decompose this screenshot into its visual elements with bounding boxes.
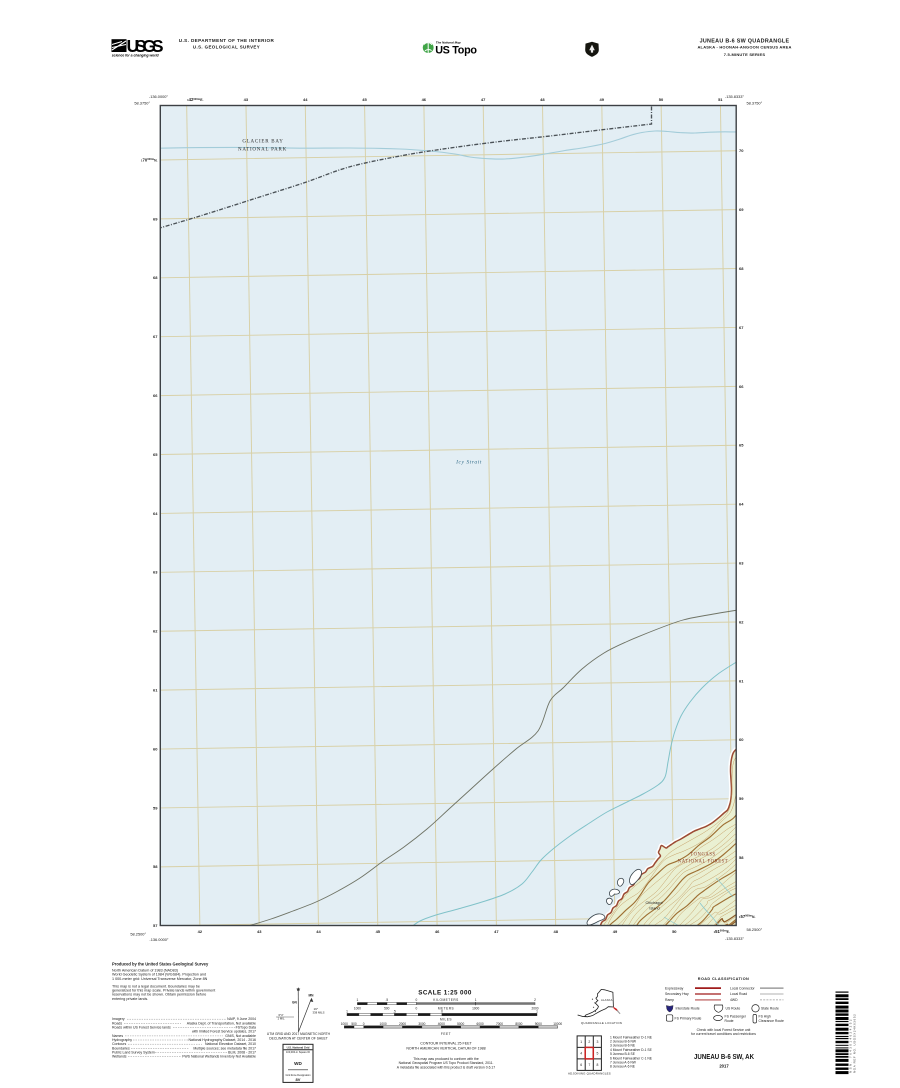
svg-text:500: 500 [351,1022,357,1026]
svg-text:65: 65 [153,452,158,457]
svg-text:49: 49 [613,929,618,934]
svg-text:58.2500°: 58.2500° [130,931,146,936]
svg-text:10000: 10000 [553,1022,562,1026]
svg-text:1: 1 [346,1009,348,1013]
svg-text:1: 1 [536,1009,538,1013]
svg-text:8: 8 [596,1063,598,1067]
svg-text:9000: 9000 [535,1022,542,1026]
svg-text:68: 68 [153,275,158,280]
svg-text:3: 3 [596,1040,598,1044]
svg-text:JUNEAU B-6 SW, AK: JUNEAU B-6 SW, AK [694,1054,754,1061]
svg-text:ALASKA - HOONAH-ANGOON CENSUS: ALASKA - HOONAH-ANGOON CENSUS AREA [697,45,791,50]
svg-text:State Route: State Route [761,1006,779,1010]
svg-text:Ramp: Ramp [665,998,674,1002]
svg-text:Local Connector: Local Connector [730,986,756,990]
svg-text:46: 46 [422,97,427,102]
svg-text:61: 61 [739,678,744,683]
svg-text:60: 60 [739,737,744,742]
svg-text:0: 0 [441,1009,443,1013]
svg-text:7.5-MINUTE SERIES: 7.5-MINUTE SERIES [724,52,766,57]
svg-text:59: 59 [739,796,744,801]
svg-text:8V: 8V [296,1077,301,1082]
svg-text:NGA REF NO. USGSX24K63652: NGA REF NO. USGSX24K63652 [853,1014,857,1073]
svg-text:47: 47 [494,929,499,934]
svg-text:338 MILS: 338 MILS [313,1011,325,1015]
svg-text:69: 69 [739,207,744,212]
svg-text:Interstate Route: Interstate Route [676,1006,700,1010]
svg-text:U.S. National Grid: U.S. National Grid [287,1045,310,1049]
svg-text:-135.8333°: -135.8333° [725,94,745,99]
svg-text:58.3750°: 58.3750° [747,100,763,105]
svg-text:3000: 3000 [418,1022,425,1026]
svg-text:57: 57 [153,923,158,928]
svg-text:45: 45 [362,97,367,102]
svg-text:Island: Island [649,907,659,911]
svg-text:68: 68 [739,266,744,271]
svg-text:58.3750°: 58.3750° [134,100,150,105]
svg-text:1: 1 [475,998,477,1002]
svg-text:2017: 2017 [719,1063,729,1068]
svg-text:NATIONAL FOREST: NATIONAL FOREST [678,860,728,865]
svg-text:4000: 4000 [438,1022,445,1026]
svg-text:.5: .5 [385,998,388,1002]
svg-text:51: 51 [718,97,723,102]
svg-text:GN: GN [292,1000,297,1004]
svg-text:58: 58 [739,855,744,860]
svg-text:500: 500 [384,1007,390,1011]
svg-text:Clearance Route: Clearance Route [759,1019,785,1023]
svg-text:MN: MN [309,994,315,998]
svg-text:58.2500°: 58.2500° [747,927,763,932]
svg-text:1000: 1000 [354,1007,361,1011]
svg-text:WD: WD [294,1061,302,1066]
svg-text:2000: 2000 [399,1022,406,1026]
svg-text:1 000-meter grid: Universal Tr: 1 000-meter grid: Universal Transverse M… [112,977,208,981]
svg-text:Route: Route [725,1019,734,1023]
svg-text:5000: 5000 [457,1022,464,1026]
svg-text:U.S. DEPARTMENT OF THE INTERIO: U.S. DEPARTMENT OF THE INTERIOR [179,38,275,43]
svg-text:NATIONAL PARK: NATIONAL PARK [238,148,287,153]
svg-text:63: 63 [153,570,158,575]
svg-text:64: 64 [153,511,158,516]
svg-text:ALASKA: ALASKA [601,998,613,1002]
svg-text:GLACIER BAY: GLACIER BAY [242,140,283,145]
svg-text:KILOMETERS: KILOMETERS [433,998,459,1002]
svg-text:62: 62 [739,619,744,624]
svg-text:44: 44 [316,929,321,934]
svg-text:100,000-m Square ID: 100,000-m Square ID [286,1051,310,1054]
svg-text:ADJOINING QUADRANGLES: ADJOINING QUADRANGLES [568,1071,611,1075]
svg-text:Secondary Hwy: Secondary Hwy [665,992,689,996]
svg-text:SCALE 1:25 000: SCALE 1:25 000 [418,989,472,996]
svg-text:entering private lands.: entering private lands. [112,997,148,1001]
svg-text:43: 43 [257,929,262,934]
svg-text:70: 70 [739,148,744,153]
svg-text:48: 48 [553,929,558,934]
svg-text:1: 1 [357,998,359,1002]
svg-text:TONGASS: TONGASS [690,852,715,857]
svg-text:US Topo: US Topo [435,44,477,56]
svg-text:U.S. GEOLOGICAL SURVEY: U.S. GEOLOGICAL SURVEY [193,45,260,50]
svg-text:1 MIL: 1 MIL [278,1016,285,1020]
svg-text:63: 63 [739,561,744,566]
svg-text:66: 66 [739,384,744,389]
svg-text:42: 42 [198,929,203,934]
svg-text:-136.0000°: -136.0000° [149,94,169,99]
svg-text:Roads within US Forest Service: Roads within US Forest Service lands [112,1026,171,1030]
svg-text:Icy Strait: Icy Strait [455,459,482,465]
svg-text:Expressway: Expressway [665,986,684,990]
svg-text:CONTOUR INTERVAL 25 FEET: CONTOUR INTERVAL 25 FEET [420,1042,472,1046]
svg-text:67: 67 [739,325,744,330]
svg-text:0: 0 [363,1022,365,1026]
svg-text:6000: 6000 [477,1022,484,1026]
svg-text:4: 4 [580,1051,582,1055]
svg-text:for current travel conditions: for current travel conditions and restri… [691,1032,756,1036]
svg-text:0: 0 [416,998,418,1002]
svg-text:49: 49 [599,97,604,102]
svg-text:66: 66 [153,393,158,398]
svg-text:US Route: US Route [726,1006,741,1010]
svg-text:Local Road: Local Road [730,992,747,996]
svg-text:0: 0 [416,1007,418,1011]
svg-text:8 Juneau A-6 NE: 8 Juneau A-6 NE [610,1065,636,1069]
svg-text:-136.0000°: -136.0000° [149,937,169,942]
svg-text:4WD: 4WD [730,998,738,1002]
svg-text:59: 59 [153,805,158,810]
svg-text:-135.8333°: -135.8333° [725,936,745,941]
svg-text:2: 2 [534,998,536,1002]
svg-text:1000: 1000 [472,1007,479,1011]
svg-text:ROAD CLASSIFICATION: ROAD CLASSIFICATION [698,977,749,981]
svg-text:NORTH AMERICAN VERTICAL DATUM: NORTH AMERICAN VERTICAL DATUM OF 1988 [406,1046,485,1050]
svg-text:FS Primary Route: FS Primary Route [675,1016,702,1020]
svg-text:44: 44 [303,97,308,102]
svg-text:A metadata file associated wit: A metadata file associated with this pro… [397,1065,495,1069]
svg-text:QUADRANGLE LOCATION: QUADRANGLE LOCATION [581,1021,622,1025]
svg-text:Produced by the United States: Produced by the United States Geological… [112,962,209,967]
svg-text:1000: 1000 [380,1022,387,1026]
svg-text:47: 47 [481,97,486,102]
svg-text:Wetlands: Wetlands [112,1055,127,1059]
svg-text:1000: 1000 [341,1022,348,1026]
svg-text:45: 45 [376,929,381,934]
svg-text:6: 6 [580,1063,582,1067]
svg-text:7: 7 [588,1063,590,1067]
svg-text:64: 64 [739,502,744,507]
svg-text:science for a changing world: science for a changing world [112,54,160,58]
svg-text:62: 62 [153,629,158,634]
svg-text:48: 48 [540,97,545,102]
svg-text:JUNEAU B-6 SW QUADRANGLE: JUNEAU B-6 SW QUADRANGLE [700,38,790,44]
svg-text:50: 50 [659,97,664,102]
svg-text:.5: .5 [393,1009,396,1013]
svg-text:65: 65 [739,443,744,448]
svg-text:5: 5 [596,1051,598,1055]
svg-text:DECLINATION AT CENTER OF SHEET: DECLINATION AT CENTER OF SHEET [269,1036,327,1040]
svg-text:FEET: FEET [441,1032,451,1036]
svg-text:Chichagof: Chichagof [645,901,663,905]
svg-text:1: 1 [580,1040,582,1044]
svg-text:60: 60 [153,746,158,751]
svg-text:50: 50 [672,929,677,934]
svg-text:2: 2 [588,1040,590,1044]
svg-text:46: 46 [435,929,440,934]
svg-text:58: 58 [153,864,158,869]
svg-text:61: 61 [153,688,158,693]
svg-text:43: 43 [244,97,249,102]
svg-text:69: 69 [153,216,158,221]
svg-text:67: 67 [153,334,158,339]
svg-text:7000: 7000 [496,1022,503,1026]
svg-text:8000: 8000 [515,1022,522,1026]
svg-text:FWS National Wetlands Inventor: FWS National Wetlands Inventory Not Avai… [182,1055,256,1059]
